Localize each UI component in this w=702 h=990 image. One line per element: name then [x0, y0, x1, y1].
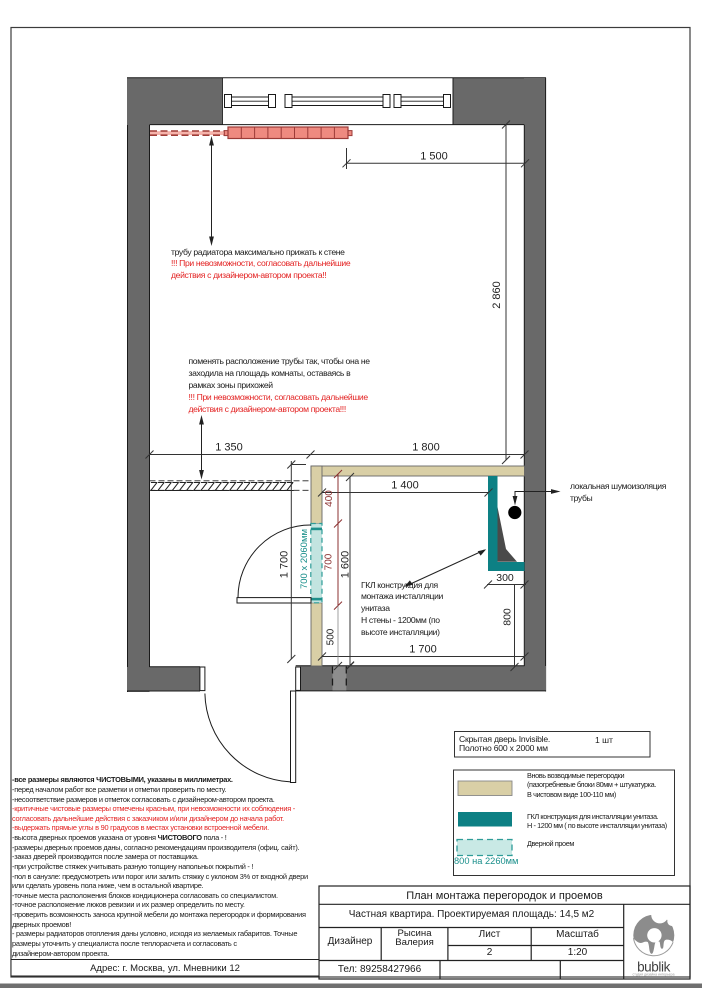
svg-text:700: 700 [324, 553, 335, 570]
svg-text:1 700: 1 700 [409, 644, 437, 656]
svg-text:ZZZZZZZZZZZZZZZZZZZZ: ZZZZZZZZZZZZZZZZZZZZ [150, 479, 294, 494]
svg-text:400: 400 [324, 490, 335, 507]
svg-text:800: 800 [502, 608, 514, 626]
svg-text:500: 500 [326, 628, 337, 645]
svg-text:1 800: 1 800 [412, 442, 440, 454]
svg-text:1 700: 1 700 [279, 551, 291, 579]
svg-text:1 500: 1 500 [420, 151, 448, 163]
svg-text:1 600: 1 600 [340, 551, 352, 579]
svg-text:1 400: 1 400 [391, 480, 419, 492]
svg-text:студия дизайна интерьера: студия дизайна интерьера [633, 973, 675, 977]
svg-text:300: 300 [496, 572, 514, 584]
svg-text:700 х 2060мм: 700 х 2060мм [299, 529, 310, 589]
svg-text:1 350: 1 350 [215, 442, 243, 454]
svg-text:2 860: 2 860 [491, 281, 503, 309]
